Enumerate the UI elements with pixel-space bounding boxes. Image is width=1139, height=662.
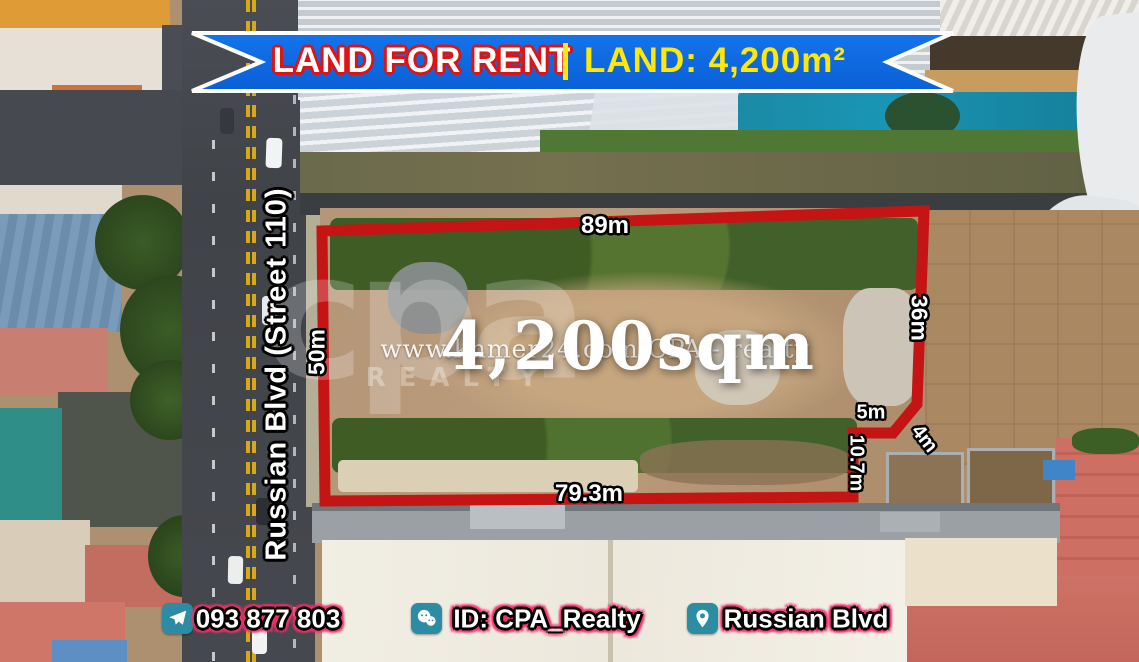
dim-label-left: 50m [304, 329, 331, 375]
wechat-id: ID: CPA_Realty [453, 604, 640, 635]
wechat-icon [411, 603, 442, 634]
location-name: Russian Blvd [724, 604, 889, 635]
telegram-icon [162, 603, 193, 634]
dim-label-top: 89m [581, 212, 629, 240]
dim-label-right: 36m [906, 295, 933, 341]
banner-subtitle: LAND: 4,200m² [584, 41, 846, 81]
plot-area-label: 4,200sqm [440, 307, 816, 385]
banner-divider [563, 43, 568, 80]
dim-label-step: 5m [857, 402, 886, 425]
street-name-label: Russian Blvd (Street 110) [261, 187, 294, 560]
dim-label-bottom: 79.3m [555, 480, 623, 508]
dim-label-notch: 10.7m [845, 435, 868, 492]
location-pin-icon [687, 603, 718, 634]
phone-number: 093 877 803 [196, 604, 341, 635]
banner-title: LAND FOR RENT [273, 41, 572, 81]
flyer-canvas: cpa REALTY www.khmer24.com CPA - realty … [0, 0, 1139, 662]
